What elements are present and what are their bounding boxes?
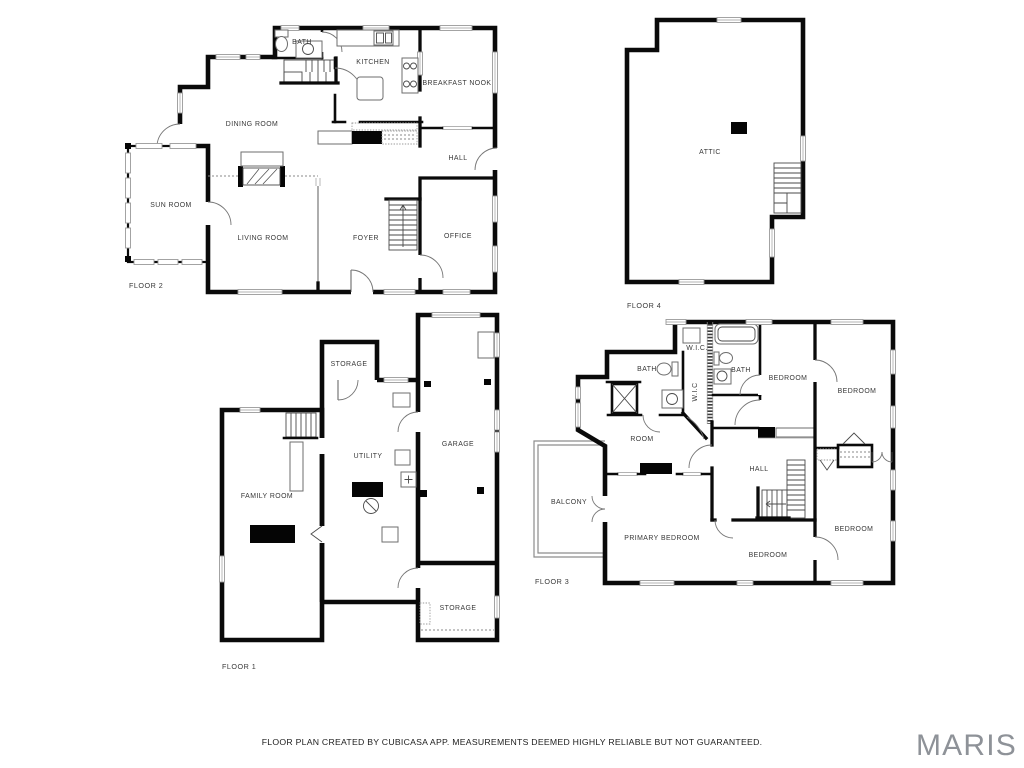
floor1-plan: STORAGE UTILITY GARAGE FAMILY ROOM STORA… bbox=[220, 313, 500, 672]
room-label-kitchen: KITCHEN bbox=[356, 59, 389, 66]
floor1-stairs bbox=[284, 413, 317, 438]
floor1-windows bbox=[220, 313, 500, 619]
room-label-attic: ATTIC bbox=[699, 149, 721, 156]
floor4-windows bbox=[679, 18, 806, 285]
room-label-sun-room: SUN ROOM bbox=[150, 202, 192, 209]
fireplace-f3 bbox=[640, 463, 672, 474]
room-label-bath-left: BATH bbox=[637, 366, 657, 373]
chimney bbox=[731, 122, 747, 134]
room-label-room: ROOM bbox=[630, 436, 653, 443]
floor2-title: FLOOR 2 bbox=[129, 281, 163, 290]
room-label-bath-right: BATH bbox=[731, 367, 751, 374]
floor3-windows bbox=[576, 320, 896, 586]
floor1-title: FLOOR 1 bbox=[222, 662, 256, 671]
room-label-storage-bottom: STORAGE bbox=[440, 605, 477, 612]
floor2-walls bbox=[125, 28, 495, 292]
floor4-plan: ATTIC FLOOR 4 bbox=[627, 18, 806, 311]
floor4-labels: ATTIC FLOOR 4 bbox=[627, 149, 721, 310]
room-label-utility: UTILITY bbox=[354, 453, 383, 460]
floor3-labels: W.I.C. BATH BATH BEDROOM BEDROOM W.I.C R… bbox=[535, 345, 876, 586]
floor3-title: FLOOR 3 bbox=[535, 577, 569, 586]
maris-watermark: MARIS bbox=[916, 729, 1017, 763]
room-label-garage: GARAGE bbox=[442, 441, 474, 448]
room-label-family-room: FAMILY ROOM bbox=[241, 493, 293, 500]
floor2-stairs bbox=[281, 58, 420, 250]
room-label-living-room: LIVING ROOM bbox=[238, 235, 289, 242]
room-label-breakfast-nook: BREAKFAST NOOK bbox=[423, 80, 492, 87]
room-label-office: OFFICE bbox=[444, 233, 472, 240]
floor4-title: FLOOR 4 bbox=[627, 301, 661, 310]
floor3-plan: W.I.C. BATH BATH BEDROOM BEDROOM W.I.C R… bbox=[534, 320, 896, 587]
floor2-windows bbox=[126, 26, 498, 295]
room-label-balcony: BALCONY bbox=[551, 499, 587, 506]
room-label-bedroom-bottom-mid: BEDROOM bbox=[749, 552, 788, 559]
room-label-bedroom-top-mid: BEDROOM bbox=[769, 375, 808, 382]
floor1-fixtures bbox=[250, 332, 494, 630]
floor2-plan: BATH KITCHEN BREAKFAST NOOK DINING ROOM … bbox=[125, 26, 499, 296]
shelf bbox=[290, 442, 303, 491]
floorplan-canvas: BATH KITCHEN BREAKFAST NOOK DINING ROOM … bbox=[0, 0, 1024, 768]
room-label-storage-top: STORAGE bbox=[331, 361, 368, 368]
floor3-walls bbox=[578, 322, 893, 583]
room-label-wic-top: W.I.C. bbox=[686, 345, 707, 352]
room-label-primary-bedroom: PRIMARY BEDROOM bbox=[624, 535, 699, 542]
room-label-bath: BATH bbox=[292, 39, 312, 46]
chimney-f3 bbox=[758, 427, 775, 438]
floorplan-page: BATH KITCHEN BREAKFAST NOOK DINING ROOM … bbox=[0, 0, 1024, 768]
room-label-foyer: FOYER bbox=[353, 235, 379, 242]
room-label-hall-f2: HALL bbox=[448, 155, 467, 162]
room-label-wic-closet: W.I.C bbox=[692, 382, 699, 401]
floor4-stairs bbox=[774, 163, 801, 213]
disclaimer-text: FLOOR PLAN CREATED BY CUBICASA APP. MEAS… bbox=[0, 737, 1024, 747]
room-label-bedroom-bottom-right: BEDROOM bbox=[835, 526, 874, 533]
room-label-bedroom-top-right: BEDROOM bbox=[838, 388, 877, 395]
room-label-dining-room: DINING ROOM bbox=[226, 121, 278, 128]
room-label-hall-f3: HALL bbox=[749, 466, 768, 473]
table bbox=[250, 525, 295, 543]
